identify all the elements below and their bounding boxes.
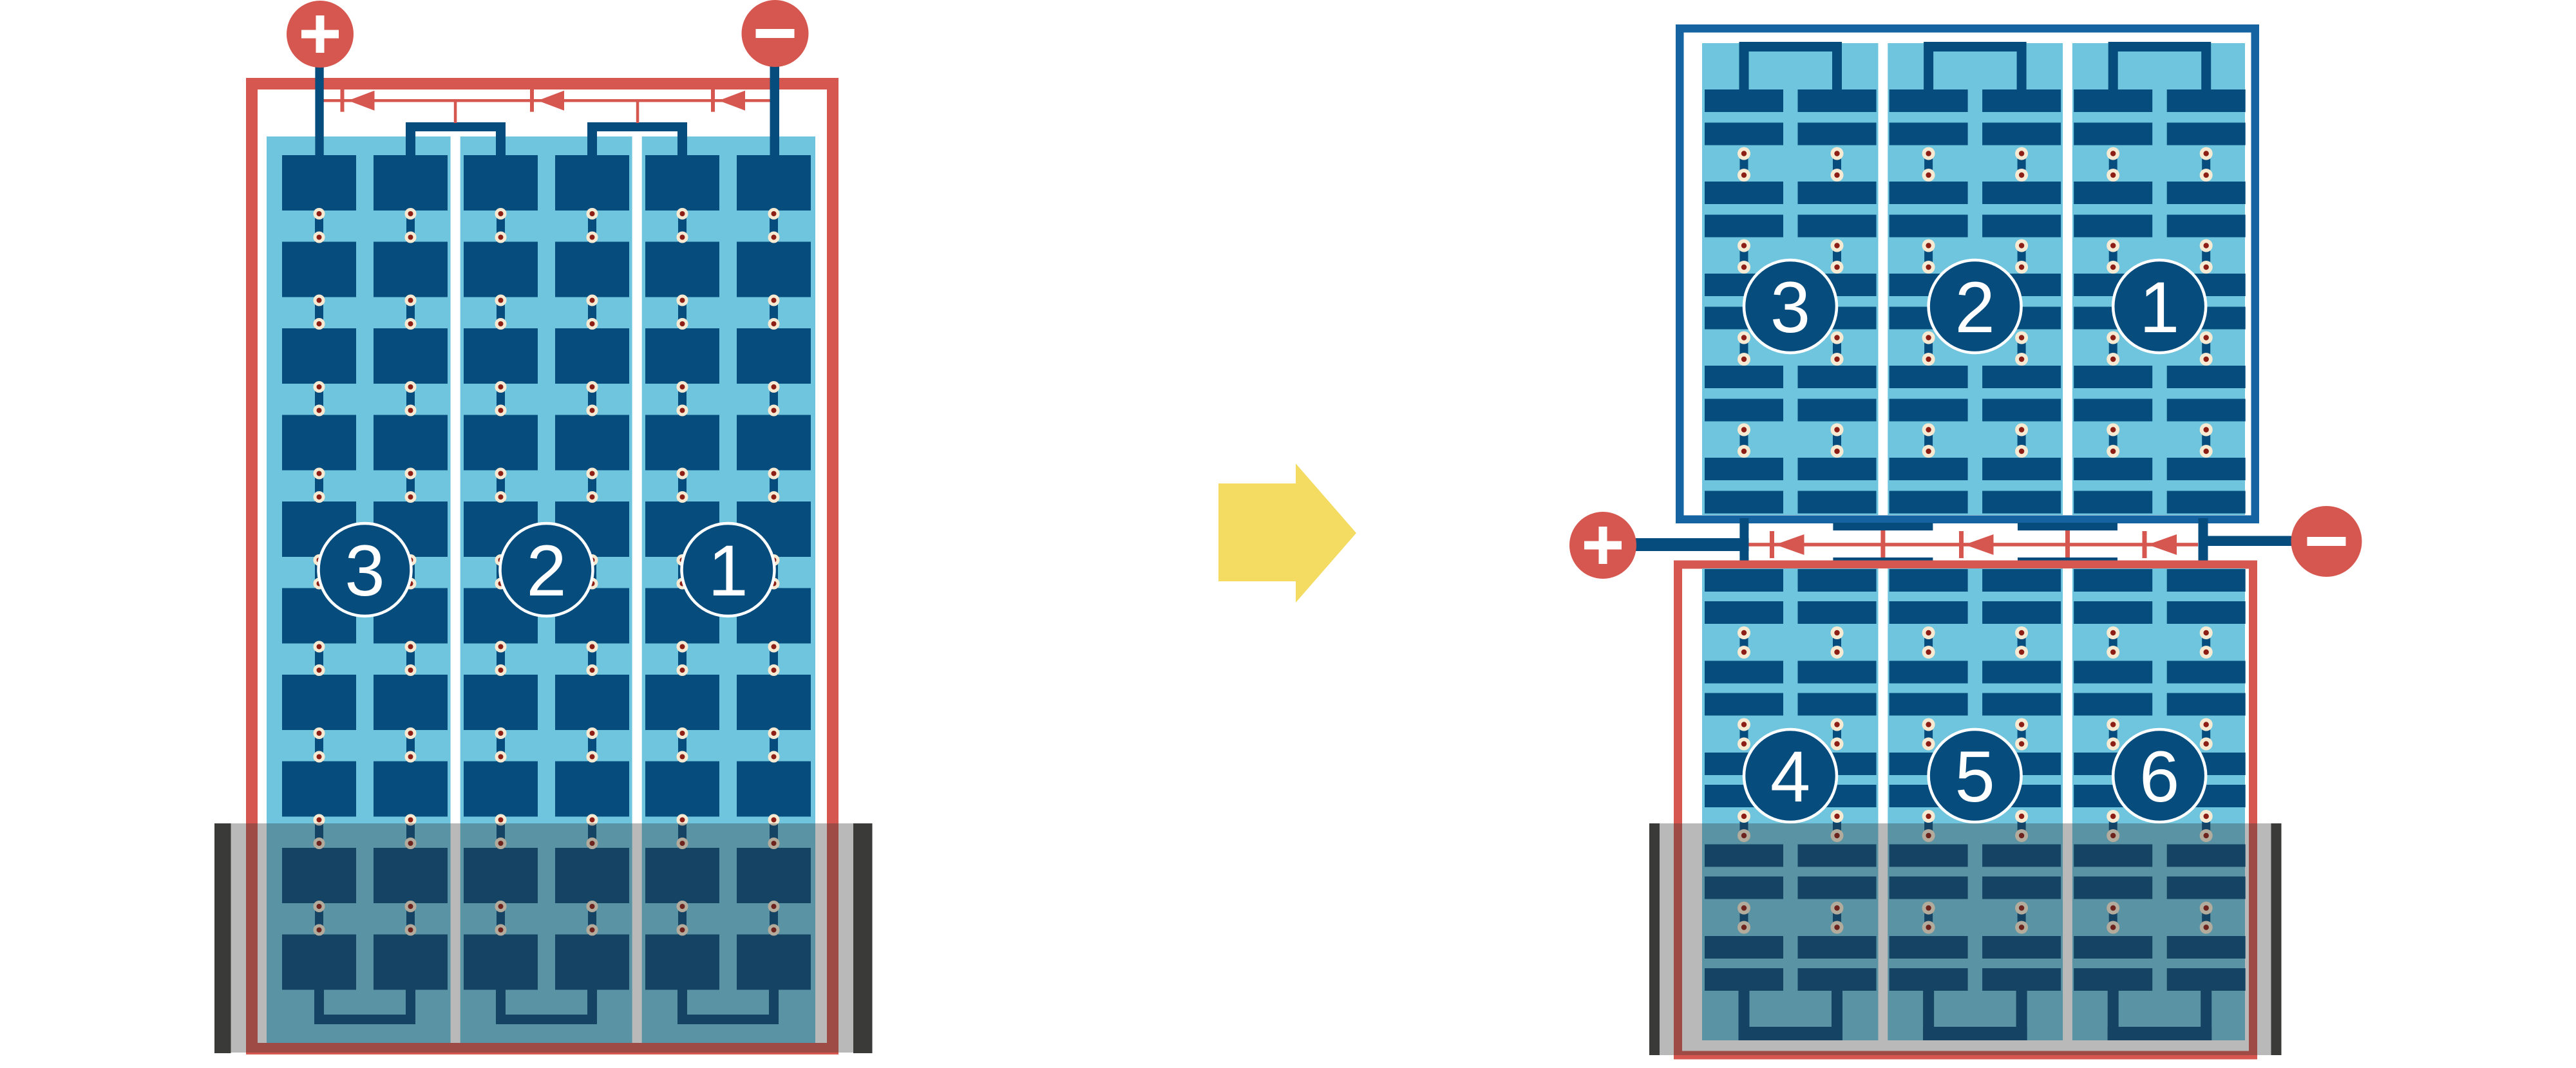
svg-text:1: 1 xyxy=(708,530,748,611)
svg-text:5: 5 xyxy=(1955,736,1994,817)
svg-text:6: 6 xyxy=(2139,736,2179,817)
svg-text:3: 3 xyxy=(345,530,384,611)
svg-text:4: 4 xyxy=(1770,736,1810,817)
svg-text:2: 2 xyxy=(526,530,566,611)
svg-text:1: 1 xyxy=(2139,267,2179,348)
svg-text:2: 2 xyxy=(1955,267,1994,348)
svg-text:3: 3 xyxy=(1770,267,1810,348)
